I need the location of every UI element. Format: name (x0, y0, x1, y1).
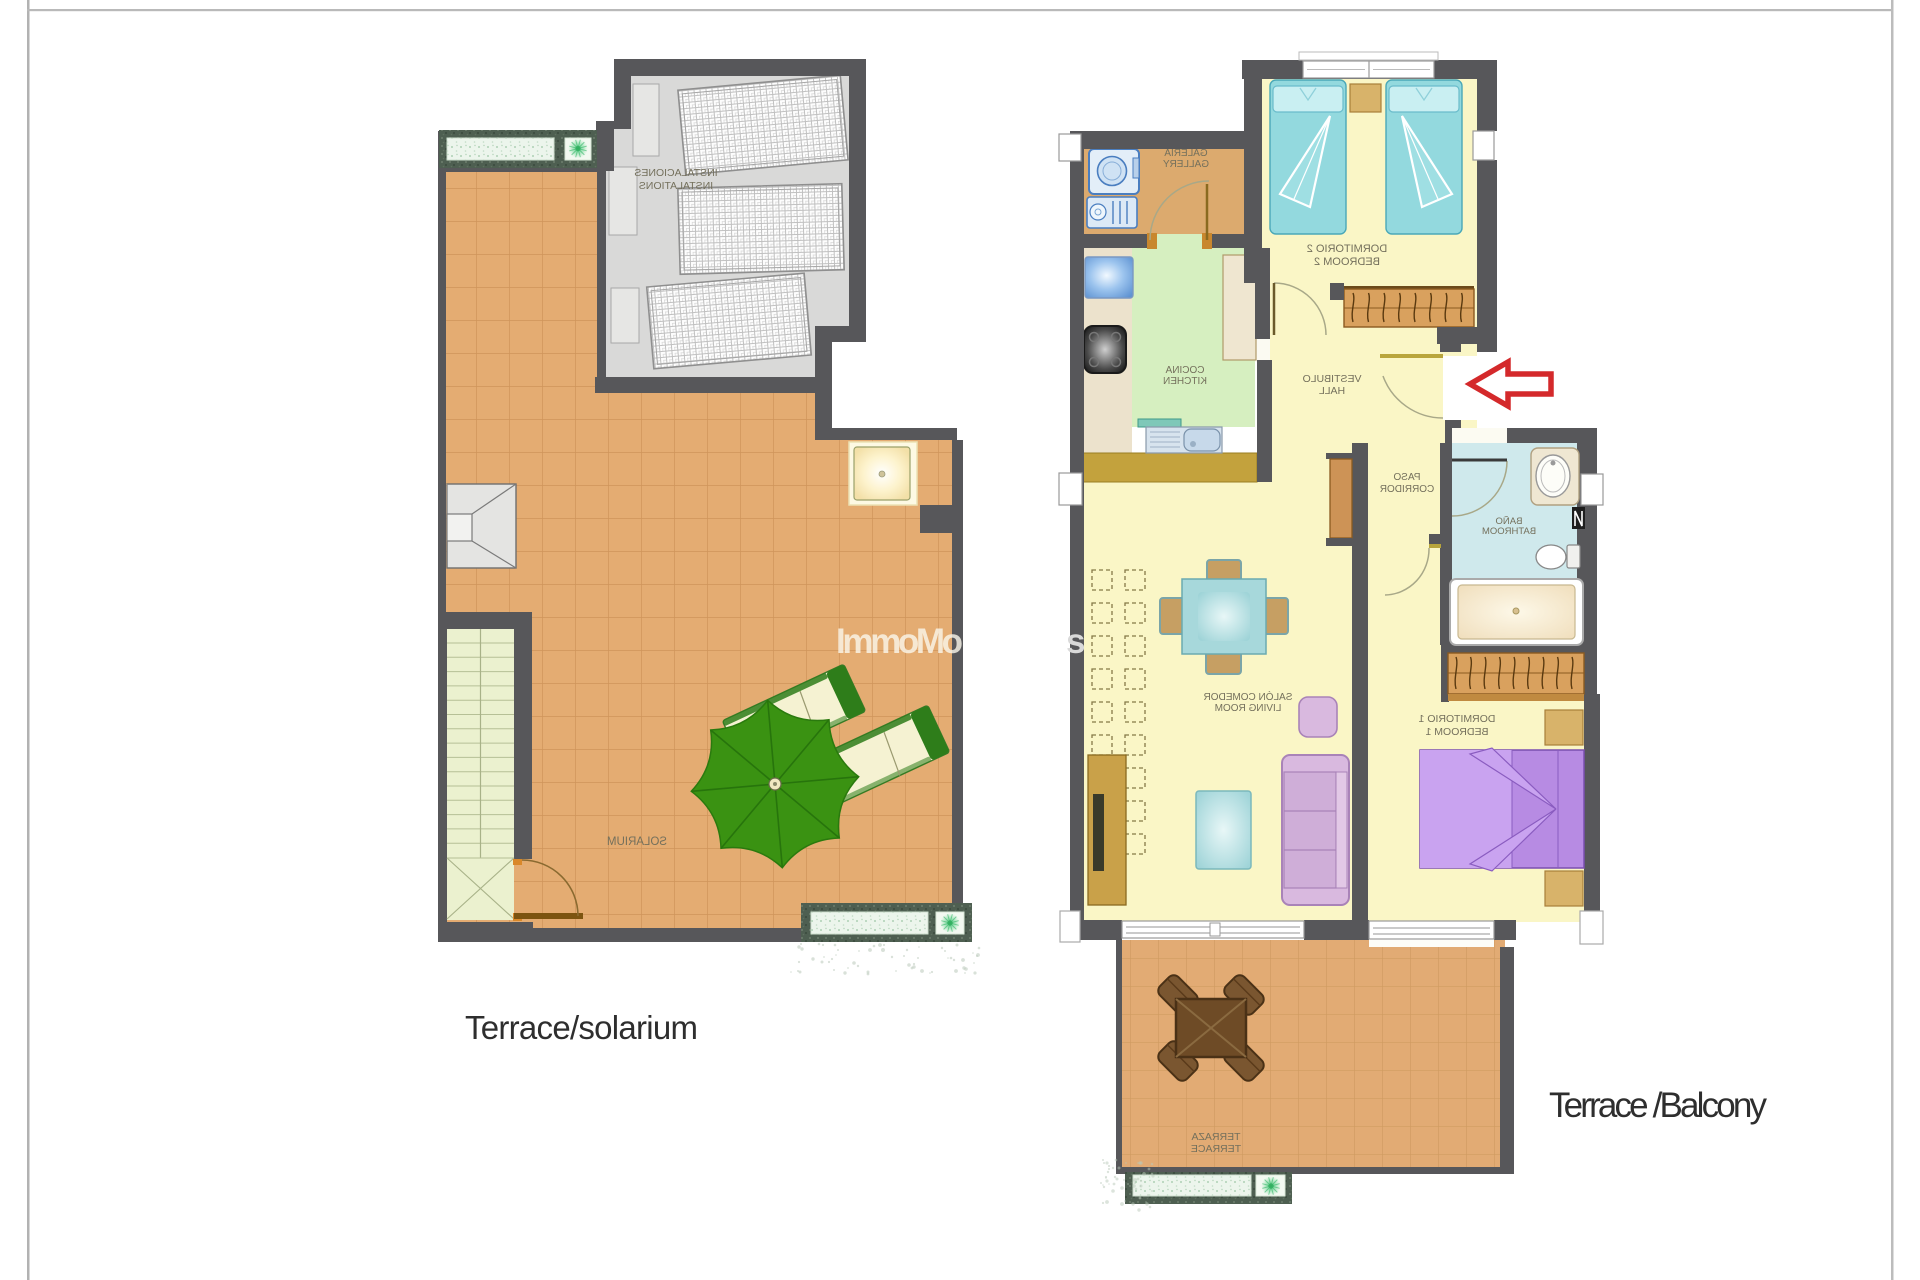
svg-text:GALLERY: GALLERY (1163, 159, 1209, 170)
svg-text:COCINA: COCINA (1165, 365, 1204, 376)
svg-text:INSTALACIONES: INSTALACIONES (634, 167, 717, 179)
svg-text:TERRACE: TERRACE (1191, 1143, 1241, 1155)
svg-text:Terrace /Balcony: Terrace /Balcony (1549, 1086, 1768, 1125)
svg-text:HALL: HALL (1319, 385, 1345, 397)
svg-text:LIVING ROOM: LIVING ROOM (1215, 703, 1282, 714)
svg-text:ImmoMo: ImmoMo (836, 622, 963, 661)
svg-text:VESTIBULO: VESTIBULO (1303, 373, 1362, 385)
svg-text:DORMITORIO 2: DORMITORIO 2 (1307, 243, 1387, 255)
svg-text:PASO: PASO (1393, 472, 1420, 483)
svg-text:s: s (1066, 622, 1085, 661)
svg-text:BATHROOM: BATHROOM (1482, 526, 1536, 537)
svg-text:CORRIDOR: CORRIDOR (1380, 484, 1434, 495)
svg-text:BEDROOM 2: BEDROOM 2 (1314, 256, 1380, 268)
svg-text:Terrace/solarium: Terrace/solarium (465, 1009, 698, 1046)
svg-text:BEDROOM 1: BEDROOM 1 (1425, 726, 1488, 738)
svg-text:GALERIA: GALERIA (1164, 148, 1208, 159)
svg-text:SALÓN COMEDOR: SALÓN COMEDOR (1204, 690, 1293, 703)
svg-text:TERRAZA: TERRAZA (1191, 1131, 1240, 1143)
svg-text:DORMITORIO 1: DORMITORIO 1 (1418, 713, 1495, 725)
svg-text:INSTALATIONS: INSTALATIONS (639, 180, 713, 192)
svg-text:KITCHEN: KITCHEN (1163, 376, 1207, 387)
svg-text:SOLARIUM: SOLARIUM (607, 836, 667, 848)
